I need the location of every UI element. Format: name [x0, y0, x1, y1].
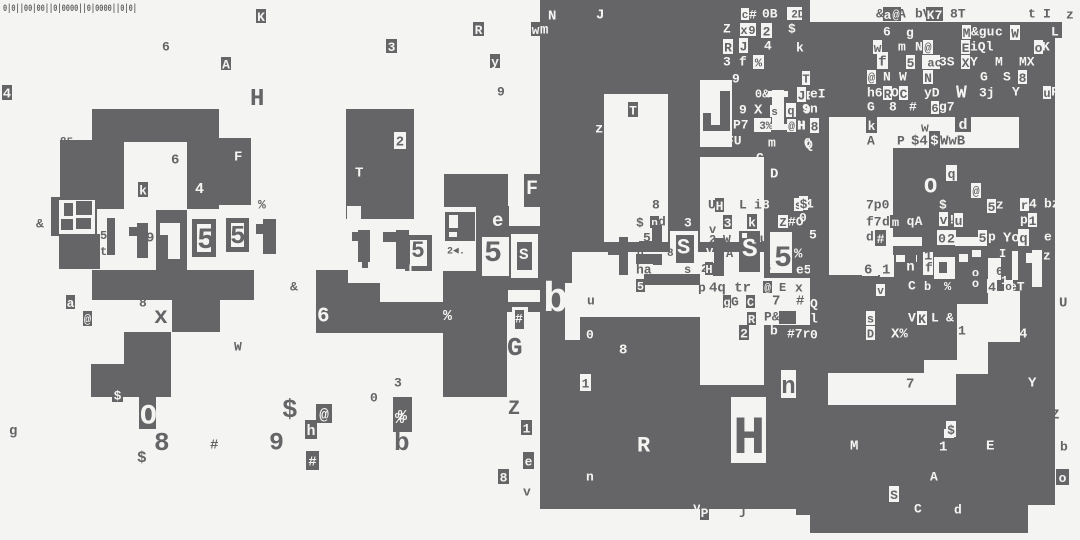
svg-text:2: 2: [396, 135, 404, 151]
svg-text:k: k: [139, 183, 147, 198]
svg-text:9: 9: [739, 103, 747, 118]
svg-text:$: $: [939, 198, 947, 213]
svg-text:%: %: [258, 198, 266, 213]
svg-text:I: I: [999, 247, 1006, 261]
svg-text:1: 1: [806, 197, 814, 212]
svg-text:4: 4: [195, 181, 204, 198]
svg-text:p: p: [698, 281, 706, 296]
svg-text:V: V: [706, 246, 714, 260]
svg-text:c: c: [162, 357, 170, 372]
svg-text:C: C: [747, 296, 754, 310]
svg-text:0B: 0B: [762, 7, 778, 22]
svg-text:$: $: [788, 22, 796, 37]
svg-text:&gu: &gu: [971, 25, 994, 40]
svg-text:p: p: [988, 230, 996, 245]
svg-text:@: @: [788, 122, 795, 134]
svg-text:q: q: [907, 214, 915, 229]
svg-text:n: n: [906, 260, 914, 276]
svg-text:b: b: [394, 428, 410, 458]
svg-text:W: W: [723, 233, 731, 248]
svg-text:q: q: [787, 104, 794, 118]
svg-text:9: 9: [748, 24, 755, 38]
svg-text:Z: Z: [508, 398, 520, 421]
svg-text:1: 1: [764, 215, 772, 230]
svg-text:o: o: [771, 120, 778, 134]
svg-text:S: S: [677, 235, 690, 260]
svg-text:m: m: [540, 22, 548, 38]
svg-text:v: v: [940, 213, 948, 228]
svg-text:$: $: [636, 216, 644, 231]
svg-text:A: A: [726, 247, 734, 261]
svg-text:J: J: [740, 39, 748, 54]
svg-text:1: 1: [882, 262, 890, 278]
svg-text:0: 0: [938, 231, 946, 246]
svg-text:o: o: [1035, 41, 1043, 56]
svg-text:5: 5: [988, 200, 996, 215]
svg-text:d: d: [866, 230, 874, 245]
svg-text:3j: 3j: [979, 86, 995, 101]
svg-text:G: G: [731, 295, 739, 310]
svg-text:E: E: [779, 281, 786, 295]
svg-text:L: L: [408, 262, 416, 278]
svg-text:H: H: [798, 119, 806, 134]
svg-text:O: O: [891, 86, 899, 101]
svg-text:T: T: [802, 72, 809, 86]
svg-text:6: 6: [931, 102, 938, 116]
svg-text:I: I: [1043, 7, 1051, 22]
svg-text:o: o: [1005, 282, 1012, 294]
svg-text:4: 4: [3, 87, 11, 103]
svg-text:W: W: [899, 70, 907, 85]
svg-text:2◄.: 2◄.: [447, 246, 465, 257]
svg-text:v: v: [877, 286, 884, 298]
svg-text:b: b: [1060, 440, 1068, 455]
svg-text:4: 4: [764, 39, 772, 54]
svg-text:5: 5: [774, 242, 792, 276]
svg-text:Y: Y: [1028, 375, 1037, 391]
svg-text:H: H: [733, 409, 765, 470]
svg-text:S: S: [1003, 70, 1011, 85]
svg-text:0: 0: [586, 328, 594, 343]
svg-text:F: F: [234, 149, 242, 165]
svg-text:M: M: [963, 26, 971, 41]
svg-text:2: 2: [740, 326, 748, 341]
svg-text:k: k: [796, 41, 804, 56]
svg-text:w: w: [532, 23, 540, 38]
svg-text:9: 9: [497, 85, 505, 100]
svg-text:k: k: [748, 215, 756, 230]
svg-text:g: g: [723, 296, 730, 310]
svg-text:1: 1: [939, 439, 947, 455]
svg-text:8: 8: [1019, 71, 1027, 86]
svg-text:S: S: [519, 246, 529, 264]
svg-text:Z: Z: [723, 22, 731, 37]
svg-text:W: W: [956, 83, 967, 103]
svg-text:0&: 0&: [755, 87, 770, 101]
svg-text:K: K: [257, 10, 265, 25]
svg-text:3: 3: [388, 40, 396, 55]
svg-text:4: 4: [1019, 326, 1027, 342]
svg-text:g: g: [906, 26, 914, 41]
svg-text:yD: yD: [924, 86, 940, 101]
svg-text:n: n: [781, 374, 795, 401]
svg-text:7p0: 7p0: [866, 198, 890, 213]
svg-text:2: 2: [947, 231, 955, 246]
svg-text:7: 7: [906, 376, 914, 392]
svg-text:E: E: [962, 41, 970, 56]
svg-text:2: 2: [763, 24, 771, 39]
svg-text:d: d: [959, 117, 968, 134]
svg-text:a: a: [884, 8, 892, 23]
svg-text:g7: g7: [939, 100, 955, 115]
svg-text:b: b: [770, 324, 778, 339]
svg-text:8: 8: [811, 119, 819, 134]
svg-text:s: s: [771, 107, 778, 119]
svg-text:%: %: [944, 280, 952, 294]
svg-text:0|0||00|00||0|0000||0|0000||0|: 0|0||00|00||0|0000||0|0000||0|0|: [3, 3, 137, 15]
svg-text:$: $: [114, 388, 122, 403]
svg-text:0: 0: [799, 211, 807, 226]
svg-text:N: N: [883, 70, 891, 85]
svg-text:c: c: [995, 25, 1003, 40]
svg-text:f7: f7: [866, 215, 882, 230]
svg-text:e5: e5: [796, 263, 812, 278]
svg-text:y: y: [491, 55, 499, 70]
svg-text:4: 4: [1029, 197, 1037, 212]
svg-text:$: $: [947, 423, 955, 438]
svg-text:6: 6: [171, 152, 179, 168]
svg-text:Y: Y: [970, 55, 978, 70]
svg-text:$: $: [930, 134, 938, 150]
svg-text:u: u: [587, 294, 595, 309]
svg-text:h6: h6: [867, 86, 883, 101]
svg-text:F: F: [1051, 85, 1059, 100]
svg-text:@: @: [972, 185, 979, 199]
svg-text:N: N: [548, 8, 556, 24]
svg-text:#: #: [210, 437, 218, 453]
svg-text:#: #: [796, 293, 804, 309]
svg-text:f: f: [739, 55, 747, 70]
svg-text:6: 6: [864, 262, 872, 278]
svg-text:%: %: [395, 411, 405, 428]
svg-text:X%: X%: [891, 326, 908, 342]
svg-text:P: P: [701, 506, 709, 521]
svg-text:6: 6: [162, 40, 170, 55]
svg-text:R: R: [884, 87, 892, 102]
svg-text:o: o: [637, 248, 644, 260]
svg-text:R: R: [637, 433, 651, 458]
svg-text:D: D: [867, 327, 874, 341]
svg-text:9: 9: [146, 230, 154, 246]
svg-text:Q: Q: [805, 138, 813, 153]
svg-text:P&: P&: [764, 310, 780, 325]
svg-text:L: L: [1051, 25, 1059, 40]
svg-text:s: s: [867, 312, 874, 326]
svg-text:x: x: [740, 24, 747, 38]
svg-text:%: %: [794, 246, 803, 262]
svg-text:p: p: [1020, 213, 1028, 228]
svg-text:m: m: [892, 216, 899, 230]
svg-text:c: c: [742, 10, 749, 22]
svg-text:%: %: [443, 308, 453, 325]
svg-text:ac: ac: [927, 56, 941, 70]
svg-text:Y: Y: [1012, 85, 1020, 100]
svg-text:l: l: [810, 312, 818, 327]
svg-text:5: 5: [484, 237, 502, 271]
svg-text:o: o: [1059, 471, 1067, 486]
svg-text:z: z: [595, 121, 603, 137]
svg-text:A: A: [930, 470, 938, 485]
svg-text:H: H: [716, 199, 724, 214]
svg-text:fu: fu: [752, 232, 768, 247]
svg-text:J: J: [596, 7, 604, 23]
svg-text:8: 8: [762, 198, 770, 213]
svg-text:9: 9: [802, 102, 810, 117]
svg-text:A: A: [867, 134, 875, 149]
svg-text:5: 5: [411, 238, 425, 264]
svg-text:L: L: [739, 198, 747, 213]
svg-text:W: W: [234, 340, 242, 355]
svg-text:5: 5: [637, 280, 644, 294]
svg-text:2D: 2D: [791, 10, 805, 22]
svg-text:q: q: [948, 167, 956, 182]
svg-text:U: U: [1059, 295, 1067, 311]
svg-text:C: C: [756, 151, 764, 166]
svg-text:1: 1: [523, 421, 531, 436]
svg-text:ß5: ß5: [60, 137, 74, 149]
svg-text:@: @: [84, 313, 91, 327]
svg-text:$: $: [137, 449, 147, 467]
svg-text:a: a: [67, 296, 75, 311]
svg-text:v: v: [523, 485, 531, 500]
svg-text:#: #: [877, 232, 885, 247]
svg-text:6: 6: [317, 306, 330, 329]
svg-text:5: 5: [809, 228, 817, 243]
svg-text:T: T: [629, 103, 637, 118]
svg-text:x: x: [795, 281, 803, 296]
svg-text:6: 6: [764, 261, 771, 275]
svg-text:d: d: [882, 215, 890, 230]
svg-text:C: C: [908, 279, 916, 294]
svg-text:H: H: [250, 86, 264, 113]
svg-text:m: m: [768, 136, 776, 151]
svg-text:8: 8: [652, 198, 660, 213]
svg-text:z: z: [996, 198, 1004, 213]
svg-text:R: R: [724, 40, 732, 55]
svg-text:m: m: [898, 40, 906, 55]
svg-text:5: 5: [197, 224, 215, 258]
svg-text:3: 3: [724, 216, 732, 231]
svg-text:f: f: [925, 261, 933, 276]
svg-text:&: &: [36, 217, 44, 232]
svg-text:h: h: [307, 423, 316, 440]
svg-text:X: X: [754, 102, 763, 118]
svg-text:%: %: [755, 56, 763, 70]
svg-text:G: G: [980, 70, 988, 85]
svg-text:s: s: [684, 263, 691, 277]
svg-text:W: W: [1011, 26, 1019, 41]
svg-text:@: @: [319, 406, 329, 424]
svg-text:e: e: [492, 210, 503, 232]
svg-text:d: d: [954, 503, 962, 518]
svg-text:A: A: [222, 57, 230, 72]
svg-text:6: 6: [883, 25, 891, 40]
svg-text:MX: MX: [1019, 55, 1035, 70]
svg-text:P: P: [897, 134, 905, 149]
svg-text:e: e: [1044, 230, 1052, 245]
svg-text:iQl: iQl: [970, 40, 994, 55]
svg-text:u: u: [955, 214, 963, 229]
svg-text:x: x: [154, 304, 168, 330]
svg-text:g: g: [9, 423, 17, 439]
svg-text:n: n: [810, 102, 818, 117]
svg-text:o: o: [972, 277, 979, 291]
svg-text:#: #: [308, 455, 316, 471]
svg-text:8: 8: [889, 100, 897, 115]
svg-text:$4: $4: [911, 133, 928, 149]
svg-text:j: j: [739, 504, 747, 519]
svg-text:C: C: [900, 87, 908, 102]
svg-text:5: 5: [100, 229, 107, 243]
svg-text:C: C: [914, 502, 922, 517]
svg-text:4: 4: [988, 280, 996, 295]
svg-text:8: 8: [154, 428, 170, 458]
svg-text:N: N: [915, 40, 923, 55]
svg-text:B: B: [723, 102, 730, 116]
svg-text:K: K: [918, 312, 926, 327]
svg-text:8: 8: [500, 470, 508, 485]
svg-text:#: #: [909, 100, 917, 115]
svg-text:r: r: [1021, 199, 1028, 213]
svg-text:0: 0: [810, 328, 818, 343]
svg-text:i: i: [754, 198, 762, 213]
svg-text:b: b: [543, 276, 568, 324]
svg-text:P7: P7: [733, 118, 749, 133]
svg-text:R: R: [475, 23, 483, 38]
svg-text:b: b: [924, 280, 931, 294]
svg-text:#: #: [749, 8, 757, 23]
svg-text:1: 1: [1029, 214, 1037, 229]
svg-text:3: 3: [723, 55, 731, 70]
svg-text:@: @: [764, 283, 771, 295]
svg-text:9: 9: [269, 429, 284, 458]
svg-text:z: z: [1066, 8, 1074, 23]
svg-text:v: v: [709, 223, 716, 237]
svg-text:@: @: [868, 71, 875, 85]
svg-text:T: T: [355, 165, 363, 181]
svg-text:5: 5: [907, 56, 915, 71]
svg-text:$: $: [282, 395, 298, 425]
svg-text:O: O: [924, 174, 937, 199]
svg-text:n: n: [586, 470, 594, 485]
svg-text:5: 5: [979, 231, 987, 246]
svg-text:ha: ha: [636, 263, 652, 278]
svg-text:8: 8: [139, 296, 147, 311]
svg-text:8: 8: [619, 342, 627, 358]
svg-text:V: V: [908, 311, 916, 326]
svg-text:Yo: Yo: [1003, 230, 1020, 246]
svg-text:e: e: [525, 454, 533, 469]
svg-text:9: 9: [732, 72, 740, 87]
svg-text:z: z: [1043, 249, 1051, 264]
svg-text:k: k: [868, 119, 876, 134]
svg-text:&: &: [290, 280, 298, 295]
svg-text:8T: 8T: [950, 7, 966, 22]
svg-text:7: 7: [935, 8, 943, 23]
svg-text:H: H: [705, 263, 712, 277]
svg-text:bz: bz: [1044, 197, 1060, 212]
svg-text:&: &: [946, 311, 954, 326]
svg-text:1: 1: [582, 376, 590, 391]
svg-text:E: E: [986, 438, 994, 454]
svg-text:5: 5: [230, 221, 246, 251]
svg-text:8: 8: [667, 248, 674, 260]
svg-text:G: G: [867, 100, 875, 115]
svg-text:M: M: [995, 55, 1003, 70]
svg-text:q: q: [1019, 232, 1027, 248]
svg-text:G: G: [507, 333, 523, 363]
svg-text:M: M: [850, 438, 858, 454]
svg-text:L: L: [931, 311, 939, 326]
svg-text:Z: Z: [779, 216, 786, 230]
svg-text:X: X: [962, 56, 970, 71]
svg-text:FU: FU: [726, 134, 742, 149]
svg-text:7: 7: [772, 293, 780, 309]
svg-text:1: 1: [958, 324, 966, 339]
svg-text:0: 0: [370, 391, 378, 406]
svg-text:K: K: [1042, 40, 1050, 55]
svg-text:D: D: [770, 166, 778, 182]
svg-text:@: @: [924, 41, 931, 55]
svg-text:f: f: [878, 55, 886, 71]
svg-text:u: u: [1043, 87, 1050, 101]
svg-text:3: 3: [394, 376, 402, 391]
svg-text:t: t: [100, 245, 107, 259]
svg-text:WwB: WwB: [940, 133, 966, 149]
svg-text:@: @: [892, 8, 899, 22]
svg-text:t: t: [1028, 7, 1036, 22]
svg-text:Q: Q: [810, 297, 818, 312]
svg-text:K: K: [927, 8, 935, 23]
svg-text:#: #: [515, 312, 523, 327]
svg-text:A: A: [915, 214, 923, 229]
svg-text:N: N: [924, 71, 932, 86]
svg-text:R: R: [748, 313, 756, 327]
svg-text:eI: eI: [810, 87, 826, 102]
svg-text:F: F: [526, 178, 538, 201]
svg-text:Z: Z: [1051, 407, 1059, 423]
svg-text:S: S: [890, 488, 898, 503]
